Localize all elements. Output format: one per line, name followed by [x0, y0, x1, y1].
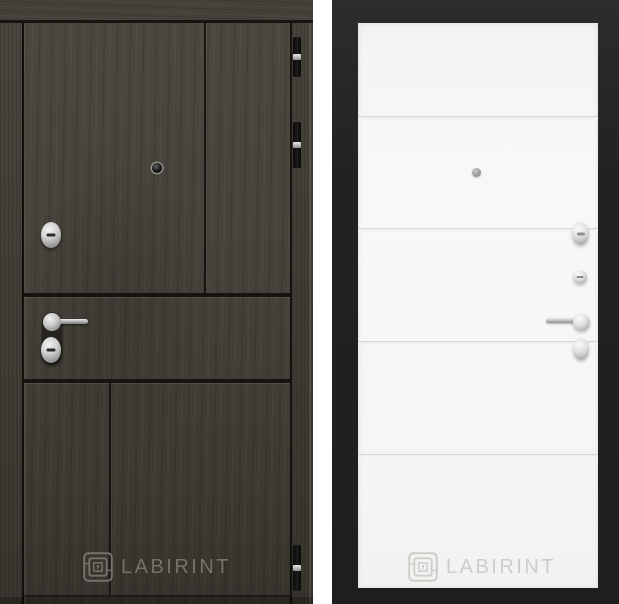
cylinder-lock-icon [573, 270, 587, 284]
peephole-icon [152, 163, 162, 173]
hinge-icon [293, 545, 301, 591]
handle-rose [573, 314, 590, 331]
labyrinth-logo-icon [408, 552, 438, 582]
horizontal-groove-2 [358, 228, 598, 232]
horizontal-groove-lower [24, 379, 290, 383]
door-catalog-image: LABIRINT LABIRINT [0, 0, 619, 604]
brand-name: LABIRINT [121, 557, 231, 577]
hinge-pin [293, 54, 301, 60]
hinge-pin [293, 565, 301, 571]
white-door-product-image[interactable]: LABIRINT [332, 0, 619, 604]
hinge-pin [293, 142, 301, 148]
hinge-icon [293, 122, 301, 168]
door-panel [358, 23, 598, 588]
keyhole-slot [47, 234, 56, 237]
brand-logo: LABIRINT [408, 552, 556, 582]
door-top-seam [0, 20, 313, 23]
door-bottom-shadow [0, 597, 313, 604]
brand-logo: LABIRINT [83, 552, 231, 582]
dark-door-product-image[interactable]: LABIRINT [0, 0, 313, 604]
hinge-icon [293, 37, 301, 77]
handle-rose [43, 313, 61, 331]
door-left-casing [0, 23, 22, 604]
brand-name: LABIRINT [446, 557, 556, 577]
keyhole-slot [47, 349, 56, 352]
horizontal-groove-1 [358, 116, 598, 120]
labyrinth-logo-icon [83, 552, 113, 582]
keyhole-escutcheon-icon [573, 338, 589, 360]
peephole-icon [472, 168, 481, 177]
thumbturn-slot [577, 232, 585, 235]
door-leaf-left-bevel [24, 23, 26, 604]
keyhole-escutcheon-icon [41, 337, 61, 363]
upper-panel-vertical-seam [204, 23, 206, 295]
keyhole-slot [577, 276, 584, 278]
door-jamb-edge-highlight [309, 23, 311, 604]
horizontal-groove-upper [24, 293, 290, 297]
door-top-casing [0, 0, 313, 20]
thumbturn-knob-icon [572, 222, 589, 245]
cylinder-lock-icon [41, 222, 61, 248]
horizontal-groove-4 [358, 454, 598, 458]
horizontal-groove-3 [358, 341, 598, 345]
